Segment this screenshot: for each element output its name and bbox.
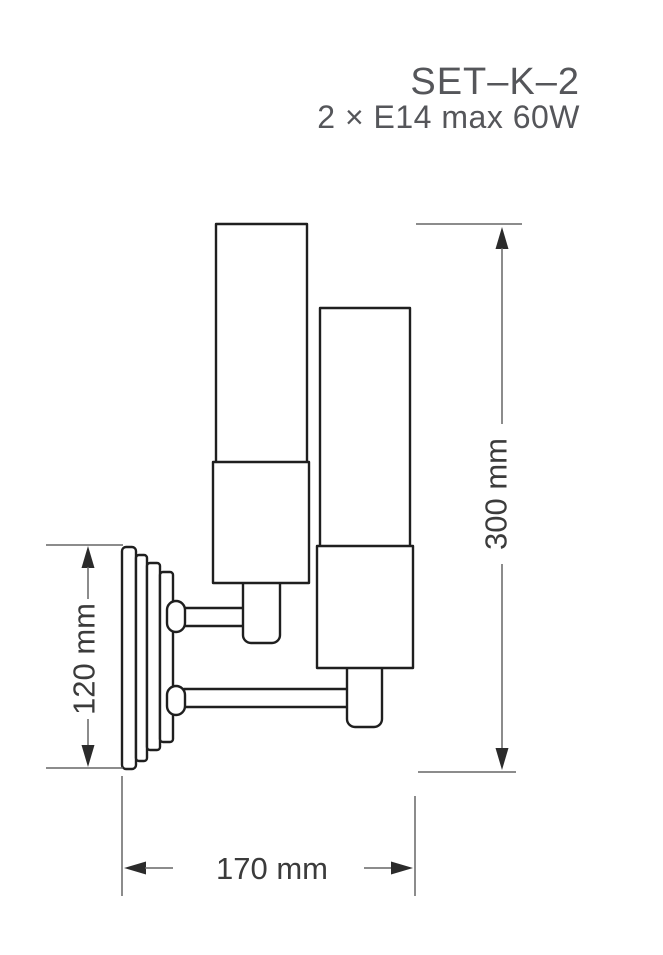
- arrowhead-right-icon: [391, 862, 413, 875]
- sconce-drawing: [122, 224, 413, 769]
- left-glass-shade: [216, 224, 307, 468]
- left-socket: [213, 462, 309, 583]
- wall-plate-layer-4: [160, 572, 173, 742]
- right-socket: [317, 546, 413, 668]
- dimension-backplate-height: 120 mm: [46, 545, 123, 768]
- total-width-label: 170 mm: [216, 851, 328, 886]
- arrowhead-down-icon: [82, 745, 95, 767]
- technical-drawing: SET–K–2 2 × E14 max 60W: [0, 0, 663, 955]
- dimension-total-width: 170 mm: [122, 776, 415, 896]
- product-spec: 2 × E14 max 60W: [317, 99, 580, 135]
- lower-arm-joint-knob: [167, 686, 185, 715]
- spec-sheet: SET–K–2 2 × E14 max 60W: [0, 0, 663, 955]
- lower-arm: [184, 689, 349, 707]
- arrowhead-up-icon: [496, 227, 509, 249]
- wall-plate-layer-2: [136, 555, 147, 761]
- wall-plate-layer-1: [122, 547, 136, 769]
- arrowhead-left-icon: [124, 862, 146, 875]
- left-stem: [243, 575, 280, 643]
- arrowhead-up-icon: [82, 546, 95, 568]
- wall-plate-layer-3: [147, 563, 160, 750]
- dimension-total-height: 300 mm: [416, 224, 522, 772]
- right-glass-shade: [320, 308, 410, 550]
- product-model: SET–K–2: [410, 61, 580, 103]
- backplate-height-label: 120 mm: [67, 603, 102, 715]
- right-stem: [347, 660, 382, 727]
- upper-arm-joint-knob: [167, 601, 185, 632]
- upper-arm: [184, 608, 245, 626]
- total-height-label: 300 mm: [479, 438, 514, 550]
- product-heading: SET–K–2 2 × E14 max 60W: [317, 61, 580, 135]
- arrowhead-down-icon: [496, 748, 509, 770]
